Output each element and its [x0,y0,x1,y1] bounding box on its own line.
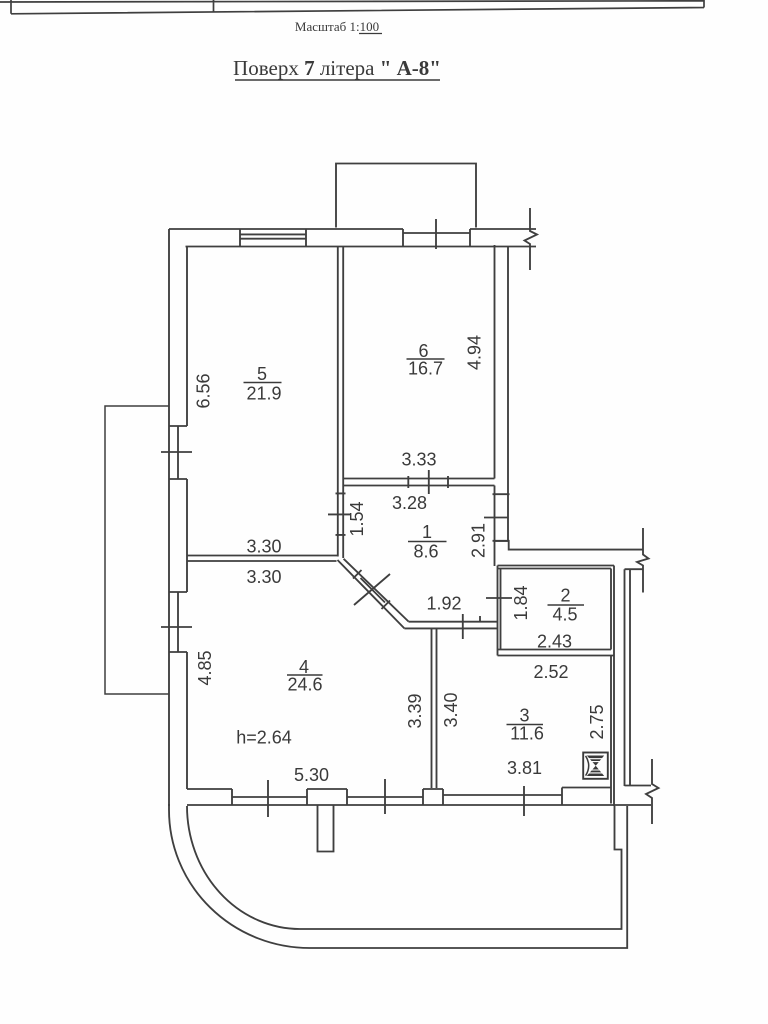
svg-text:6.56: 6.56 [194,373,214,408]
svg-text:1: 1 [422,522,432,542]
svg-text:2.91: 2.91 [469,523,489,558]
svg-text:4.5: 4.5 [552,605,577,625]
svg-text:21.9: 21.9 [246,384,281,404]
svg-text:3.81: 3.81 [507,758,542,778]
svg-text:2.52: 2.52 [533,662,568,682]
svg-text:4.94: 4.94 [465,335,485,370]
svg-text:2.75: 2.75 [587,704,607,739]
svg-text:3.40: 3.40 [441,692,461,727]
svg-text:2.43: 2.43 [537,632,572,652]
svg-text:8.6: 8.6 [413,542,438,562]
svg-text:1.92: 1.92 [426,594,461,614]
svg-text:h=2.64: h=2.64 [236,728,292,748]
svg-text:3.30: 3.30 [246,567,281,587]
svg-text:3.33: 3.33 [401,450,436,470]
svg-text:1.54: 1.54 [347,501,367,536]
svg-text:11.6: 11.6 [510,724,544,744]
svg-text:24.6: 24.6 [287,675,322,695]
svg-text:4.85: 4.85 [195,650,215,685]
svg-text:3.39: 3.39 [405,693,425,728]
svg-text:3.28: 3.28 [392,493,427,513]
svg-text:Масштаб 1:100: Масштаб 1:100 [295,19,379,34]
svg-text:2: 2 [560,586,570,606]
svg-text:5: 5 [257,364,267,384]
svg-text:16.7: 16.7 [408,359,443,379]
svg-text:1.84: 1.84 [511,585,531,620]
svg-text:Поверх 7 літера " А-8": Поверх 7 літера " А-8" [233,56,441,80]
svg-text:5.30: 5.30 [294,765,329,785]
svg-text:3.30: 3.30 [246,537,281,557]
svg-text:3: 3 [519,706,529,726]
